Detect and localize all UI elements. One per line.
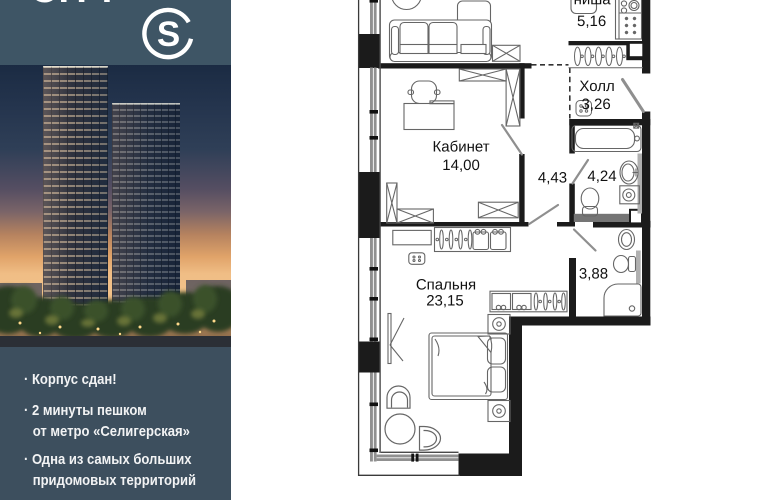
svg-text:4,43: 4,43 — [538, 170, 567, 187]
svg-text:23,15: 23,15 — [426, 292, 464, 309]
svg-text:ниша: ниша — [574, 0, 612, 8]
svg-text:Спальня: Спальня — [416, 276, 476, 293]
svg-text:3,88: 3,88 — [579, 266, 608, 283]
svg-text:3,26: 3,26 — [581, 96, 610, 113]
svg-text:4,24: 4,24 — [587, 168, 616, 185]
svg-text:5,16: 5,16 — [577, 13, 606, 30]
svg-text:14,00: 14,00 — [442, 157, 480, 174]
svg-text:Холл: Холл — [579, 78, 614, 95]
svg-text:Кабинет: Кабинет — [433, 138, 490, 155]
